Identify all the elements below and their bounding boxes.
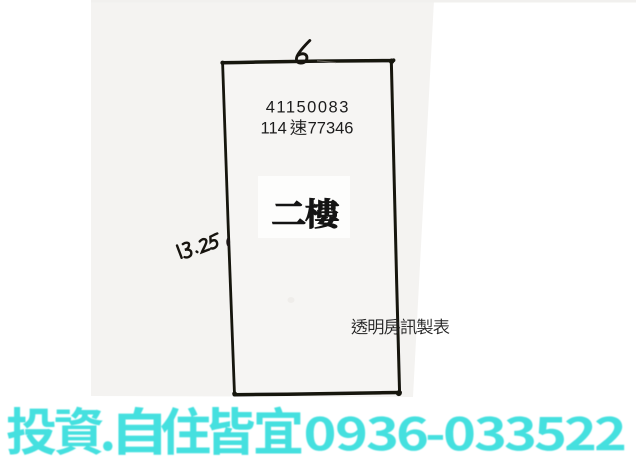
svg-text:41150083: 41150083 [266,99,350,117]
svg-text:77346: 77346 [308,120,354,138]
svg-text:114: 114 [261,120,287,138]
